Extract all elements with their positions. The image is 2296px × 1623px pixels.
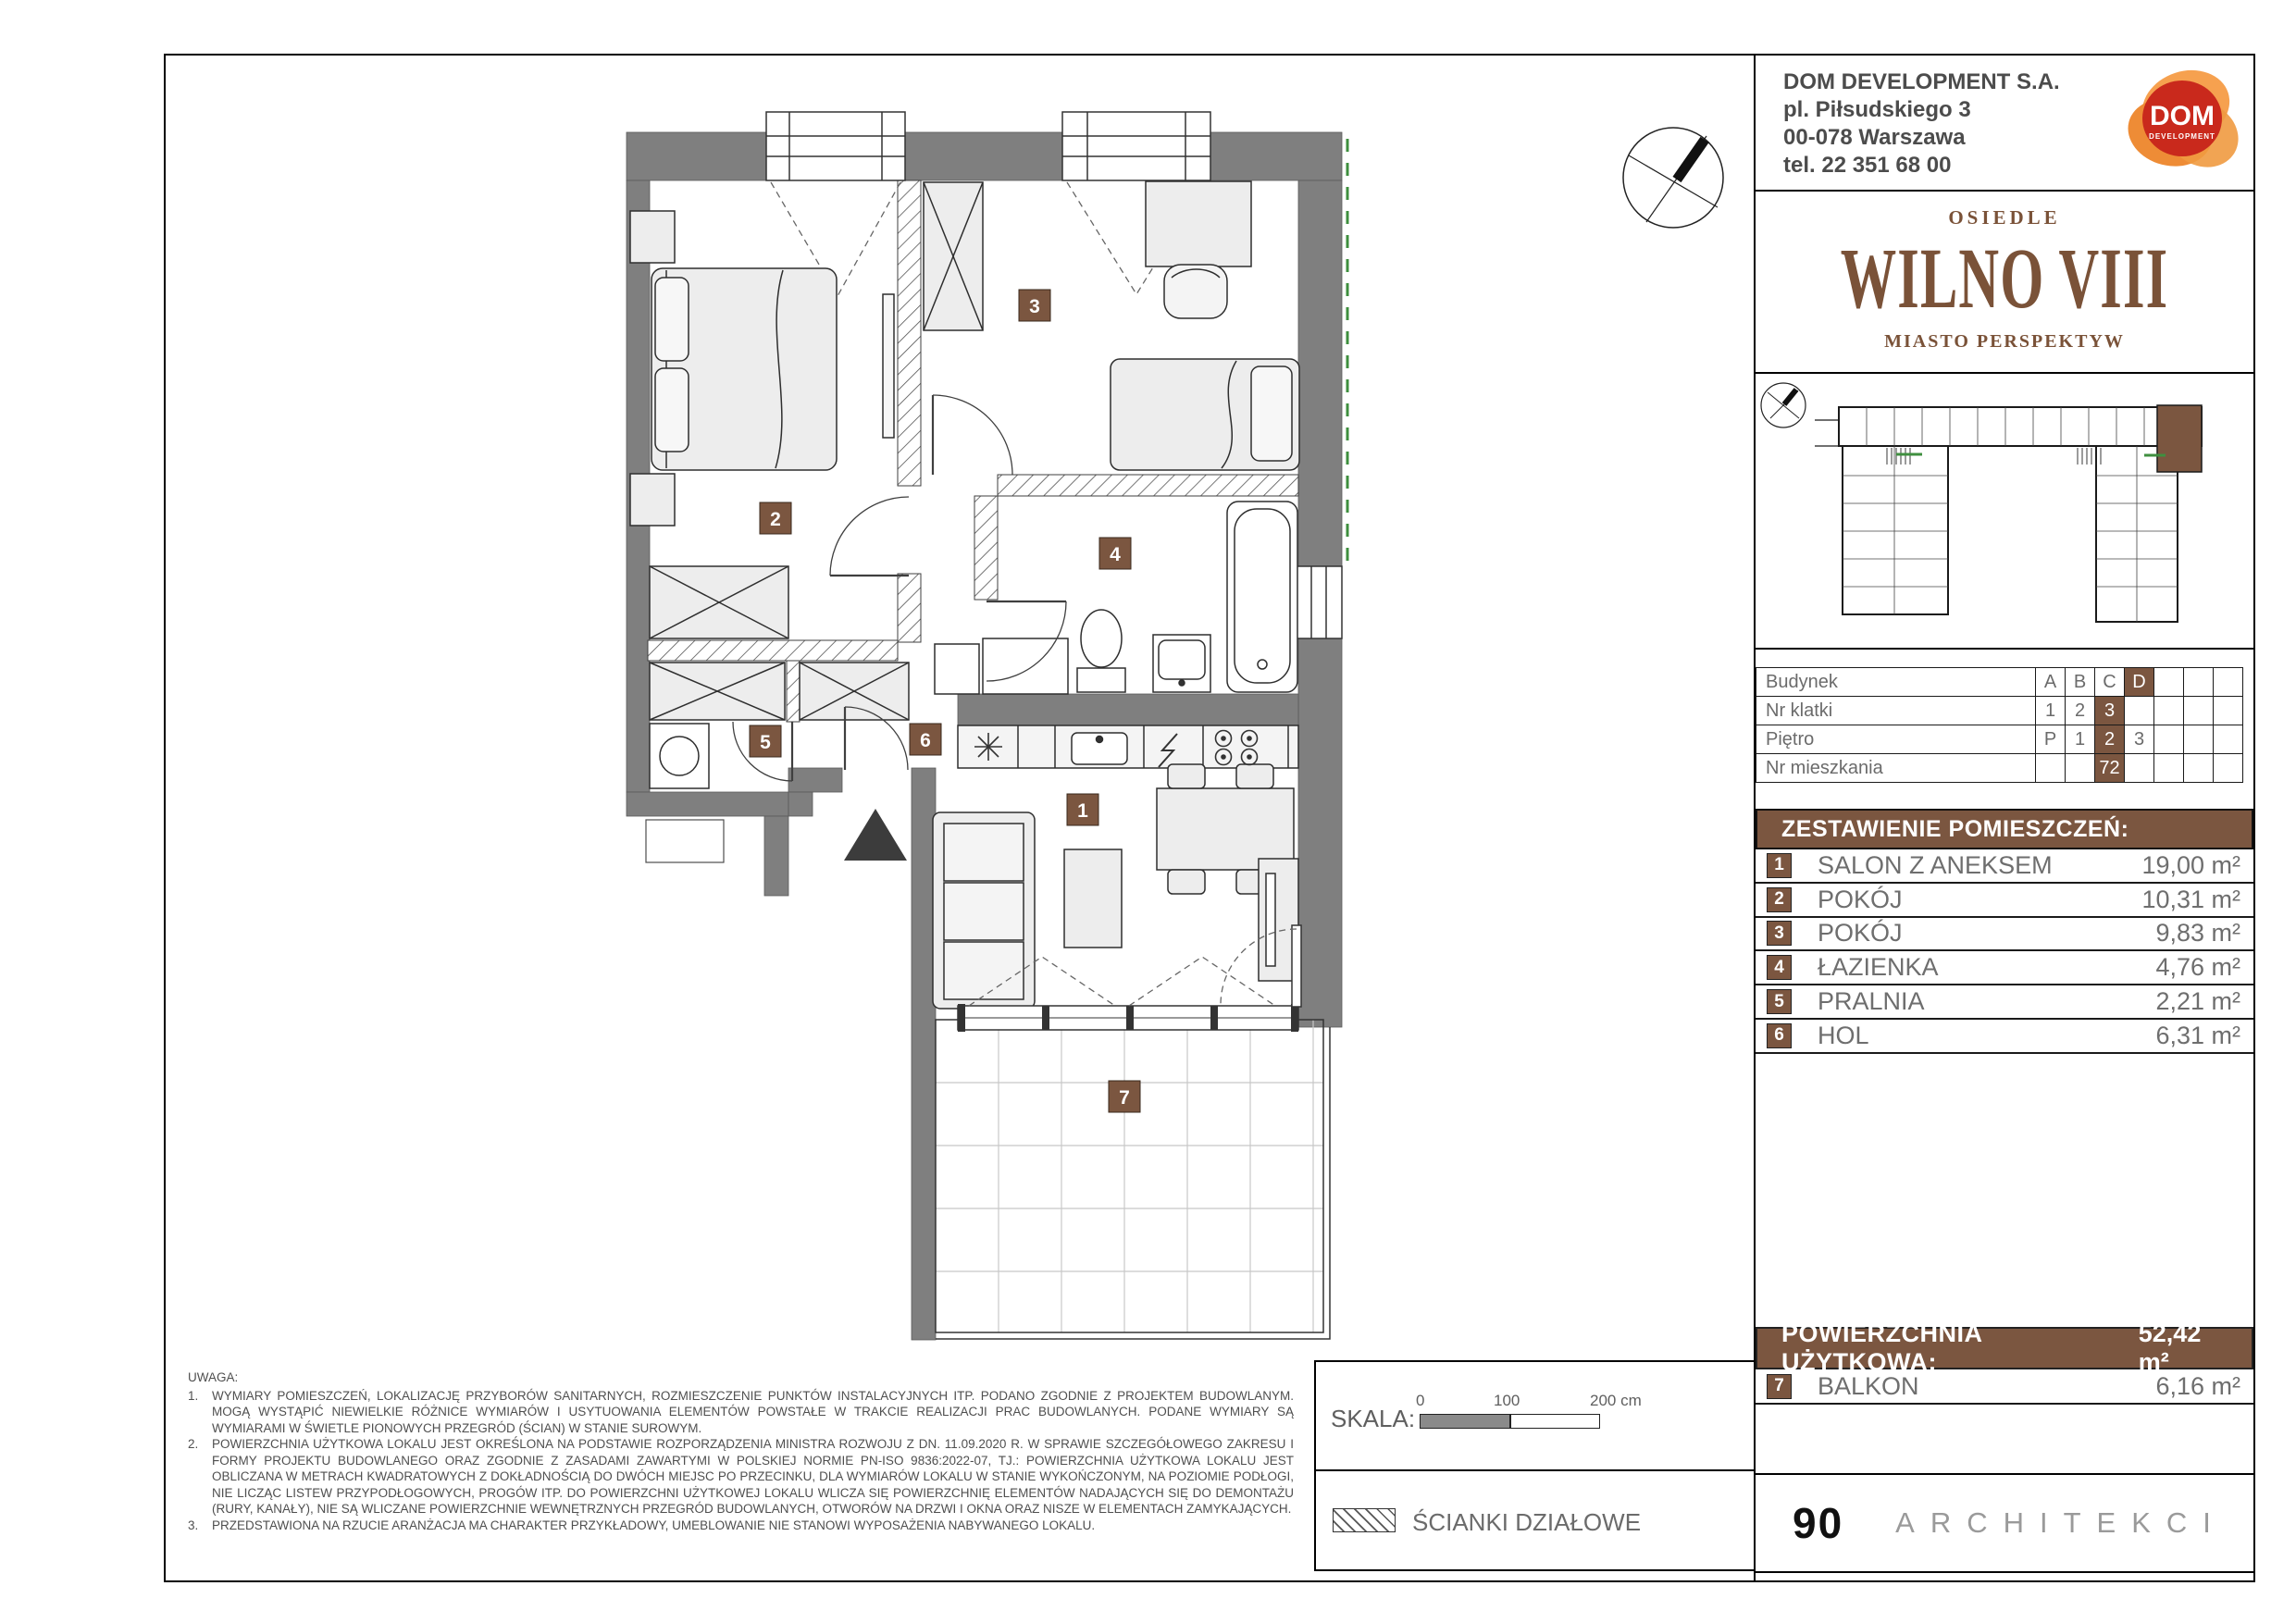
estate-tagline: MIASTO PERSPEKTYW <box>1756 331 2253 353</box>
estate-logo: OSIEDLE WILNO VIII MIASTO PERSPEKTYW <box>1756 192 2253 374</box>
note-item: 1. WYMIARY POMIESZCZEŃ, LOKALIZACJĘ PRZY… <box>188 1388 1294 1437</box>
room-number-badge: 2 <box>1767 887 1792 912</box>
room-row: 4 ŁAZIENKA 4,76 m² <box>1756 951 2253 985</box>
room-number-badge: 3 <box>1767 921 1792 946</box>
scale-label: SKALA: <box>1331 1405 1415 1433</box>
scale-tick-100: 100 <box>1494 1392 1520 1410</box>
room-name: HOL <box>1818 1022 1869 1050</box>
note-item: 3. PRZEDSTAWIONA NA RZUCIE ARANŻACJA MA … <box>188 1518 1294 1534</box>
nightstand <box>630 211 675 263</box>
scale-legend: SKALA: 0 100 200 cm <box>1314 1360 1756 1469</box>
room-schedule-header: ZESTAWIENIE POMIESZCZEŃ: <box>1756 809 2253 849</box>
note-item: 2. POWIERZCHNIA UŻYTKOWA LOKALU JEST OKR… <box>188 1436 1294 1518</box>
estate-name: WILNO VIII <box>1726 229 2284 328</box>
table-row: Nr klatki 1 2 3 <box>1756 697 2243 725</box>
estate-pre-label: OSIEDLE <box>1756 206 2253 229</box>
desk <box>1146 181 1251 266</box>
room-label-2: 2 <box>770 509 781 530</box>
partition-legend-label: ŚCIANKI DZIAŁOWE <box>1412 1508 1641 1537</box>
room-area: 19,00 m² <box>2141 851 2240 880</box>
room-name: BALKON <box>1818 1372 1919 1401</box>
floor-plan-sheet: { "developer": { "name": "DOM DEVELOPMEN… <box>0 0 2296 1623</box>
row-label: Nr klatki <box>1756 697 2036 725</box>
room-label-7: 7 <box>1119 1087 1130 1109</box>
architect-logo: 90 ARCHITEKCI <box>1756 1473 2253 1573</box>
furniture <box>630 181 1299 1009</box>
highlighted-cell: 2 <box>2095 725 2125 754</box>
mirror <box>883 294 894 438</box>
highlighted-cell: 3 <box>2095 697 2125 725</box>
usable-area-bar: POWIERZCHNIA UŻYTKOWA: 52,42 m² <box>1756 1327 2253 1369</box>
room-row: 5 PRALNIA 2,21 m² <box>1756 985 2253 1020</box>
highlighted-cell: D <box>2125 668 2154 697</box>
locator-compass-icon <box>1761 383 1806 427</box>
chair <box>1236 764 1273 788</box>
highlighted-unit <box>2157 405 2202 472</box>
nightstand <box>630 474 675 526</box>
room-number-badge: 4 <box>1767 955 1792 980</box>
room-label-6: 6 <box>920 730 931 751</box>
notes-label: UWAGA: <box>188 1369 1294 1386</box>
table-row: Nr mieszkania 72 <box>1756 754 2243 783</box>
highlighted-cell: 72 <box>2095 754 2125 783</box>
entrance-arrow-icon <box>844 809 907 861</box>
svg-text:DOM: DOM <box>2150 101 2215 131</box>
room-area: 6,16 m² <box>2155 1372 2240 1401</box>
architect-number: 90 <box>1793 1498 1843 1548</box>
architect-name: ARCHITEKCI <box>1895 1506 2227 1540</box>
balcony-row: 7 BALKON 6,16 m² <box>1756 1369 2253 1405</box>
developer-phone: tel. 22 351 68 00 <box>1783 152 2060 180</box>
usable-area-value: 52,42 m² <box>2139 1319 2237 1377</box>
room-name: ŁAZIENKA <box>1818 953 1939 982</box>
shaft <box>983 638 1068 694</box>
chair <box>1168 870 1205 894</box>
dom-development-logo-icon: DOM DEVELOPMENT <box>2119 60 2244 185</box>
room-name: POKÓJ <box>1818 886 1903 914</box>
room-name: POKÓJ <box>1818 919 1903 948</box>
room-name: PRALNIA <box>1818 987 1925 1016</box>
toilet <box>1077 668 1125 692</box>
room-area: 10,31 m² <box>2141 886 2240 914</box>
room-schedule: 1 SALON Z ANEKSEM 19,00 m² 2 POKÓJ 10,31… <box>1756 849 2253 1054</box>
scale-bar-filled <box>1420 1414 1510 1429</box>
room-label-1: 1 <box>1077 800 1088 822</box>
row-label: Nr mieszkania <box>1756 754 2036 783</box>
room-area: 4,76 m² <box>2155 953 2240 982</box>
table-row: Budynek A B C D <box>1756 668 2243 697</box>
room-number-badge: 6 <box>1767 1023 1792 1048</box>
info-panel: DOM DEVELOPMENT S.A. pl. Piłsudskiego 3 … <box>1754 54 2255 1582</box>
row-label: Piętro <box>1756 725 2036 754</box>
coffee-table <box>1064 849 1122 948</box>
desk-chair <box>1164 265 1227 318</box>
fridge-snowflake-icon <box>974 733 1002 761</box>
shaft <box>935 644 979 694</box>
notes: UWAGA: 1. WYMIARY POMIESZCZEŃ, LOKALIZAC… <box>188 1369 1294 1533</box>
building-outline <box>1815 407 2202 622</box>
room-label-5: 5 <box>760 732 771 753</box>
room-area: 2,21 m² <box>2155 987 2240 1016</box>
room-row: 3 POKÓJ 9,83 m² <box>1756 918 2253 952</box>
hatch-swatch-icon <box>1333 1508 1396 1532</box>
usable-area-label: POWIERZCHNIA UŻYTKOWA: <box>1781 1319 2139 1377</box>
developer-address1: pl. Piłsudskiego 3 <box>1783 96 2060 124</box>
room-name: SALON Z ANEKSEM <box>1818 851 2053 880</box>
table-row: Piętro P 1 2 3 <box>1756 725 2243 754</box>
building-locator-plan <box>1756 374 2253 650</box>
apartment-floor-plan: 1 2 3 4 5 6 7 <box>164 54 1754 1358</box>
compass-icon <box>1623 128 1723 228</box>
scale-bar-empty <box>1510 1414 1600 1429</box>
chair <box>1168 764 1205 788</box>
room-row: 1 SALON Z ANEKSEM 19,00 m² <box>1756 849 2253 884</box>
room-number-badge: 5 <box>1767 989 1792 1014</box>
company-header: DOM DEVELOPMENT S.A. pl. Piłsudskiego 3 … <box>1756 56 2253 192</box>
room-number-badge: 7 <box>1767 1374 1792 1399</box>
room-area: 6,31 m² <box>2155 1022 2240 1050</box>
location-table: Budynek A B C D Nr klatki 1 2 3 Piętr <box>1756 667 2243 783</box>
developer-name: DOM DEVELOPMENT S.A. <box>1783 68 2060 96</box>
recess-niche <box>646 820 724 862</box>
svg-text:DEVELOPMENT: DEVELOPMENT <box>2149 132 2215 141</box>
room-row: 6 HOL 6,31 m² <box>1756 1020 2253 1054</box>
room-area: 9,83 m² <box>2155 919 2240 948</box>
room-number-badge: 1 <box>1767 853 1792 878</box>
room-label-4: 4 <box>1110 544 1121 565</box>
scale-tick-200: 200 cm <box>1590 1392 1642 1410</box>
scale-tick-0: 0 <box>1416 1392 1424 1410</box>
dining-table <box>1157 788 1294 870</box>
room-row: 2 POKÓJ 10,31 m² <box>1756 884 2253 918</box>
room-label-3: 3 <box>1029 296 1040 317</box>
partition-legend: ŚCIANKI DZIAŁOWE <box>1314 1469 1756 1571</box>
developer-address2: 00-078 Warszawa <box>1783 124 2060 152</box>
row-label: Budynek <box>1756 668 2036 697</box>
